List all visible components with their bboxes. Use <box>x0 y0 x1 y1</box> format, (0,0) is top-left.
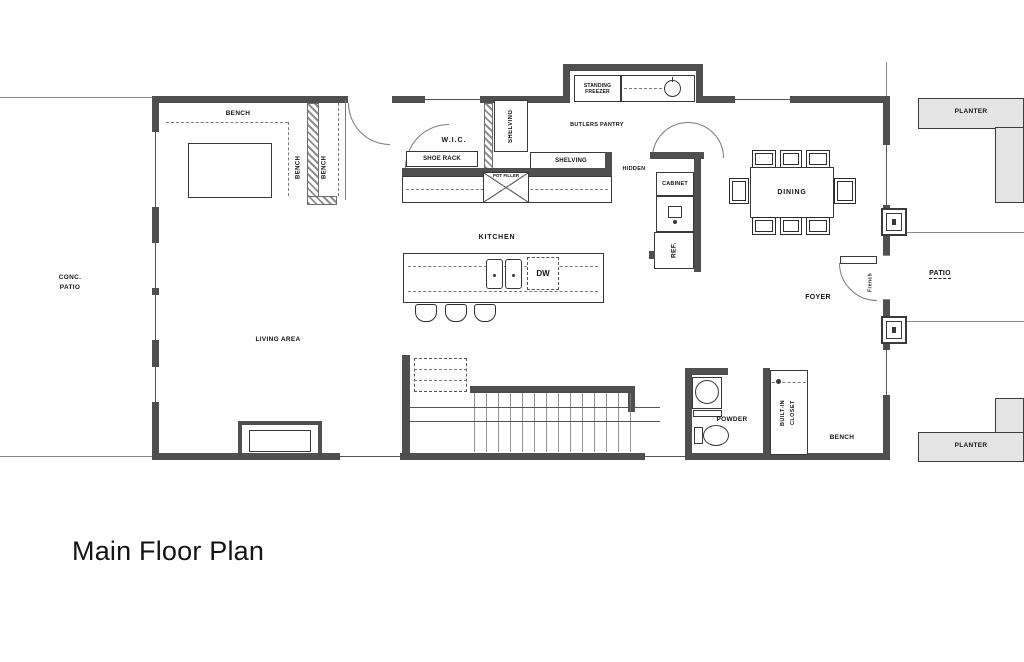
closet-rod-dot <box>776 379 781 384</box>
planter-top-wing <box>995 127 1024 203</box>
dining-chair <box>780 150 802 168</box>
patio-label: PATIO <box>898 270 982 278</box>
wall-segment <box>152 207 159 243</box>
wall-segment <box>763 368 770 455</box>
column-detail-core <box>892 327 896 333</box>
hatched-wall <box>307 196 337 205</box>
cabinet: CABINET <box>656 172 694 196</box>
bench-outline <box>288 122 289 196</box>
stool <box>474 304 496 322</box>
cabinet-label: CABINET <box>662 181 688 187</box>
wall-segment <box>152 96 159 132</box>
wall-segment <box>152 288 159 295</box>
patio-slider-door <box>340 453 400 460</box>
wall-segment <box>392 96 425 103</box>
shelving-vertical-label: SHELVING <box>505 101 517 151</box>
patio-step-line <box>892 321 1024 322</box>
stool <box>415 304 437 322</box>
sink-basin <box>486 259 503 289</box>
room-label-butlers-pantry: BUTLERS PANTRY <box>557 122 637 128</box>
window <box>152 367 159 402</box>
wall-nib <box>649 251 655 259</box>
dining-chair <box>806 217 830 235</box>
planter-bottom-label: PLANTER <box>918 442 1024 449</box>
stair-rail-wall <box>470 386 635 393</box>
pantry-sink-faucet <box>672 77 673 82</box>
property-line <box>0 456 152 457</box>
sink-basin <box>505 259 522 289</box>
toilet-bowl <box>703 425 729 446</box>
room-label-powder: POWDER <box>706 416 758 423</box>
overhead-outline <box>414 358 467 392</box>
dining-chair <box>729 178 749 204</box>
window <box>735 96 790 103</box>
dishwasher-label: DW <box>536 269 549 278</box>
wall-segment <box>790 96 890 103</box>
property-line <box>886 62 887 98</box>
window <box>883 350 890 395</box>
room-label-bench: BENCH <box>294 142 303 192</box>
toilet-tank <box>694 427 703 444</box>
appliance-knob <box>673 220 677 224</box>
coffee-station-appliance <box>668 206 682 218</box>
room-label-bench: BENCH <box>320 142 329 192</box>
french-door-leaf <box>840 256 877 264</box>
mudroom-table <box>188 143 272 198</box>
dining-chair <box>752 150 776 168</box>
pantry-bump-wall <box>696 64 703 103</box>
refrigerator-label: REF. <box>668 237 680 264</box>
overhead-dash <box>414 369 467 370</box>
pantry-sink <box>664 80 681 97</box>
overhead-dash <box>414 380 467 381</box>
door-swing-arc <box>348 61 432 145</box>
dining-chair <box>752 217 776 235</box>
room-label-conc-patio: PATIO <box>30 284 110 291</box>
window <box>152 295 159 340</box>
wall-segment <box>152 402 159 460</box>
floor-plan-canvas: PLANTER PLANTER BENCH BENCH BENCH W.I.C. <box>0 0 1024 662</box>
built-in-closet-label: BUILT-IN <box>779 389 787 437</box>
hatched-wall <box>484 103 493 176</box>
window <box>425 96 480 103</box>
pot-filler-label: POT FILLER <box>484 173 528 178</box>
window <box>883 145 890 205</box>
stairs-treads <box>474 393 632 452</box>
shoe-rack-label: SHOE RACK <box>423 156 461 162</box>
dining-chair <box>834 178 856 204</box>
door-jamb <box>883 255 890 256</box>
wall-segment <box>883 395 890 460</box>
kitchen-island <box>403 253 604 303</box>
dining-table: DINING <box>750 167 834 218</box>
fireplace-inner <box>249 430 311 452</box>
standing-freezer: STANDING FREEZER <box>574 75 621 102</box>
stair-rail-line <box>410 407 660 408</box>
planter-bottom-wing <box>995 398 1024 434</box>
dishwasher: DW <box>527 257 559 290</box>
room-label-living-area: LIVING AREA <box>238 336 318 343</box>
wall-segment <box>685 368 728 375</box>
built-in-closet-label: CLOSET <box>789 389 797 437</box>
room-label-kitchen: KITCHEN <box>457 234 537 242</box>
wall-segment <box>694 155 701 272</box>
planter-top-label: PLANTER <box>918 108 1024 115</box>
standing-freezer-label: FREEZER <box>585 89 610 95</box>
stair-rail-line <box>410 421 660 422</box>
room-label-dining: DINING <box>777 189 806 196</box>
hatched-wall <box>307 103 319 198</box>
column-detail <box>881 316 907 344</box>
wall-segment <box>152 96 348 103</box>
french-door-label: French <box>866 265 875 299</box>
window <box>152 243 159 288</box>
window <box>645 453 685 460</box>
room-label-bench: BENCH <box>200 110 276 117</box>
patio-step-line <box>892 232 1024 233</box>
island-dash <box>408 266 598 267</box>
bench-outline <box>338 103 339 196</box>
island-dash <box>408 291 598 292</box>
property-line <box>0 97 152 98</box>
bench-outline <box>166 122 288 123</box>
room-label-bench-bottom: BENCH <box>818 434 866 441</box>
partition-line <box>345 100 346 200</box>
column-detail-core <box>892 219 896 225</box>
wall-segment <box>883 96 890 145</box>
shoe-rack: SHOE RACK <box>406 151 478 167</box>
patio-label-text: PATIO <box>929 270 951 279</box>
plan-title: Main Floor Plan <box>72 536 264 567</box>
wall-segment <box>703 96 735 103</box>
dining-chair <box>806 150 830 168</box>
dining-chair <box>780 217 802 235</box>
wall-segment <box>152 340 159 367</box>
pantry-counter-dash <box>624 88 662 89</box>
pantry-bump-wall <box>563 64 703 71</box>
shelving-horizontal-label: SHELVING <box>555 158 587 164</box>
stair-wall <box>402 355 410 455</box>
room-label-foyer: FOYER <box>778 294 858 302</box>
room-label-conc-patio: CONC. <box>30 274 110 281</box>
window <box>152 132 159 207</box>
wall-segment <box>685 368 692 455</box>
wall-segment <box>400 453 645 460</box>
stool <box>445 304 467 322</box>
column-detail <box>881 208 907 236</box>
powder-sink <box>695 380 719 404</box>
